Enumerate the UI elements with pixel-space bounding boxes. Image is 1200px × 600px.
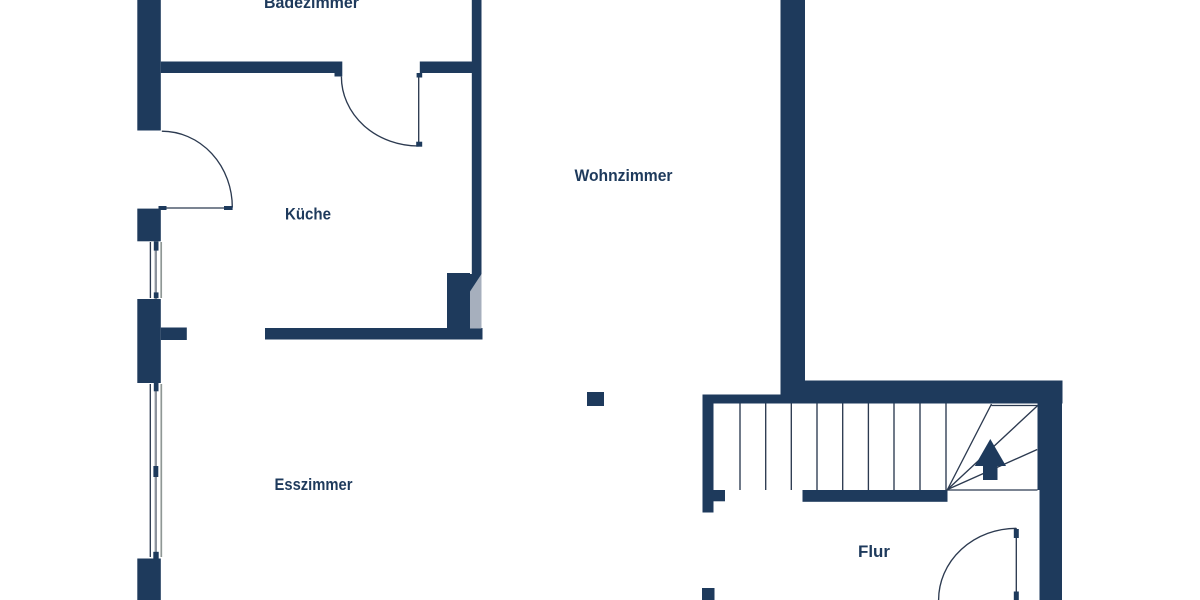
svg-text:Wohnzimmer: Wohnzimmer [575,166,673,185]
svg-text:Esszimmer: Esszimmer [275,475,353,494]
svg-text:Küche: Küche [285,205,331,224]
svg-text:Flur: Flur [858,542,890,561]
svg-text:Badezimmer: Badezimmer [264,0,359,12]
